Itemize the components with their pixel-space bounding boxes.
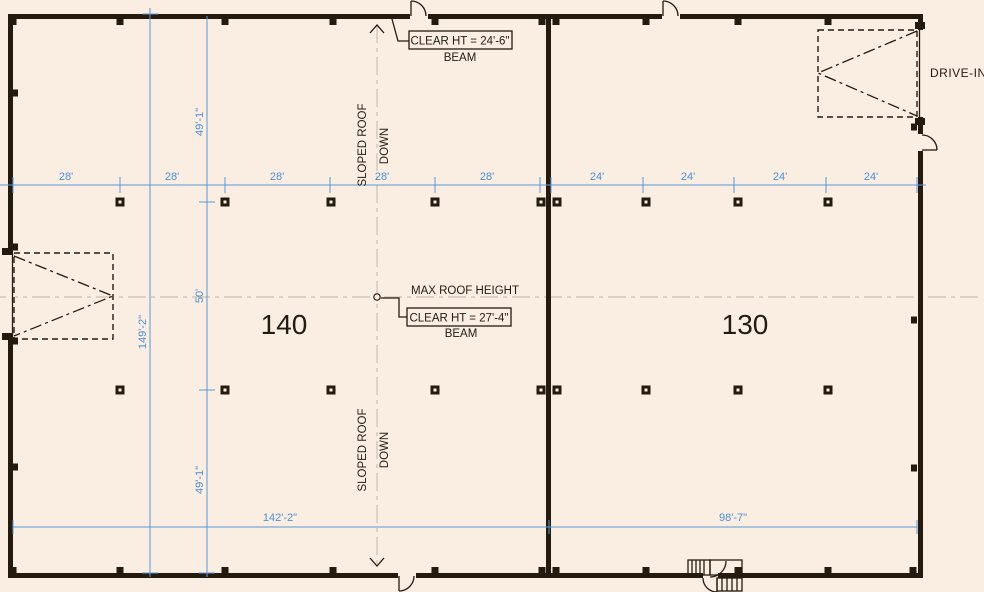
room-number-140: 140	[261, 309, 308, 340]
drive-in-label: DRIVE-IN	[930, 66, 984, 80]
segment-dim-label: 49'-1"	[194, 108, 206, 136]
sloped-roof-label-top: SLOPED ROOF	[357, 103, 369, 186]
overall-height-dim-label: 149'-2"	[137, 315, 149, 349]
bay-dim-label: 28'	[480, 171, 494, 183]
bay-dim-label: 28'	[165, 171, 179, 183]
top-clear-ht-label: CLEAR HT = 24'-6"	[410, 36, 509, 48]
bay-dim-label: 28'	[59, 171, 73, 183]
floor-plan-canvas: 28' 28' 28' 28' 28' 24' 24' 24' 24' 149'…	[0, 0, 984, 592]
down-label-top: DOWN	[379, 128, 391, 164]
bay-dim-label: 24'	[773, 171, 787, 183]
floor-plan-drawing: 28' 28' 28' 28' 28' 24' 24' 24' 24' 149'…	[0, 0, 984, 592]
down-label-bottom: DOWN	[379, 432, 391, 468]
max-roof-height-marker	[374, 294, 380, 300]
bay-dim-label: 24'	[681, 171, 695, 183]
segment-dim-label: 49'-1"	[194, 466, 206, 494]
sloped-roof-label-bottom: SLOPED ROOF	[357, 408, 369, 491]
center-beam-label: BEAM	[445, 328, 478, 340]
bay-dim-label: 28'	[375, 171, 389, 183]
bay-dim-label: 24'	[590, 171, 604, 183]
max-roof-height-label: MAX ROOF HEIGHT	[411, 285, 519, 297]
segment-dim-label: 50'	[194, 289, 206, 303]
bottom-right-dim-label: 98'-7"	[719, 512, 747, 524]
top-beam-label: BEAM	[444, 52, 477, 64]
room-number-130: 130	[722, 309, 769, 340]
bay-dim-label: 24'	[864, 171, 878, 183]
bay-dim-label: 28'	[270, 171, 284, 183]
bottom-left-dim-label: 142'-2"	[263, 512, 297, 524]
center-clear-ht-label: CLEAR HT = 27'-4"	[409, 313, 508, 325]
